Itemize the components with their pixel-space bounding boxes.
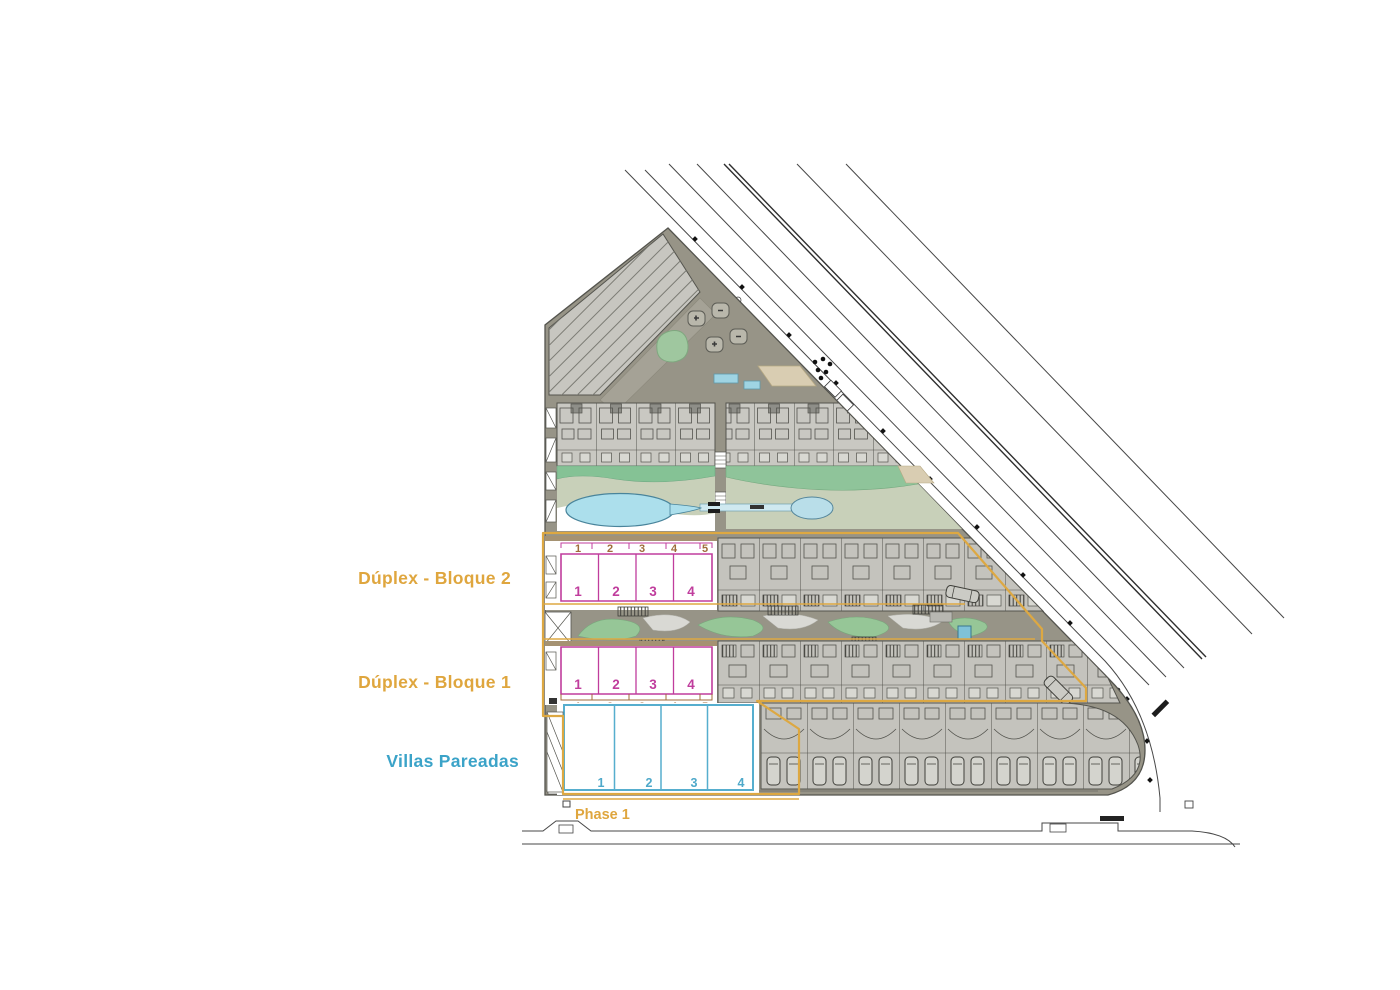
b1-unit-4: 4 [687,677,695,692]
site-plan-page: 1 2 3 4 5 1 2 3 4 [0,0,1400,990]
villas-label: Villas Pareadas [386,751,519,771]
b2-unit-1: 1 [574,584,582,599]
b1-unit-3: 3 [649,677,657,692]
main-pool [566,494,674,527]
b2-plot-3: 3 [639,543,645,555]
b2-plot-4: 4 [671,543,678,555]
secondary-pool [791,497,833,519]
b1-unit-1: 1 [574,677,582,692]
b2-plot-1: 1 [575,543,581,555]
duplex-block1-ground [545,641,717,705]
plaza-water-feature-2 [744,381,760,389]
b2-plot-5: 5 [702,543,708,555]
site-plan-svg: 1 2 3 4 5 1 2 3 4 [0,0,1400,990]
villa-unit-2: 2 [646,776,653,790]
plaza-lawn-blob [657,331,688,362]
road-marking [1050,824,1066,832]
duplex-block1-row: 1 2 3 4 1 2 3 4 5 [545,641,1120,713]
phase1-label: Phase 1 [575,807,630,823]
crosswalk-marking [559,825,573,833]
phase1-marker [563,801,570,807]
villa-unit-4: 4 [738,776,745,790]
utility-box [1185,801,1193,808]
b2-plot-2: 2 [607,543,613,555]
villas-row: 1 2 3 4 [557,703,1140,795]
villa-unit-3: 3 [691,776,698,790]
garden-mini-pool [958,626,971,639]
duplex-block2-row: 1 2 3 4 5 1 2 3 4 [545,536,1043,611]
b2-unit-3: 3 [649,584,657,599]
b2-unit-4: 4 [687,584,695,599]
plaza-water-feature [714,374,738,383]
pool-area [557,466,962,531]
bottom-street-north-edge [522,821,1235,847]
villa-unit-1: 1 [598,776,605,790]
street-label-tick [1100,816,1124,821]
b1-unit-2: 2 [612,677,620,692]
duplex-block1-label: Dúplex - Bloque 1 [358,672,511,692]
villas-ground [557,703,759,795]
duplex-block2-label: Dúplex - Bloque 2 [358,568,511,588]
duplex-block2-ground [545,538,717,610]
b2-unit-2: 2 [612,584,620,599]
townhouse-row [761,703,1140,789]
